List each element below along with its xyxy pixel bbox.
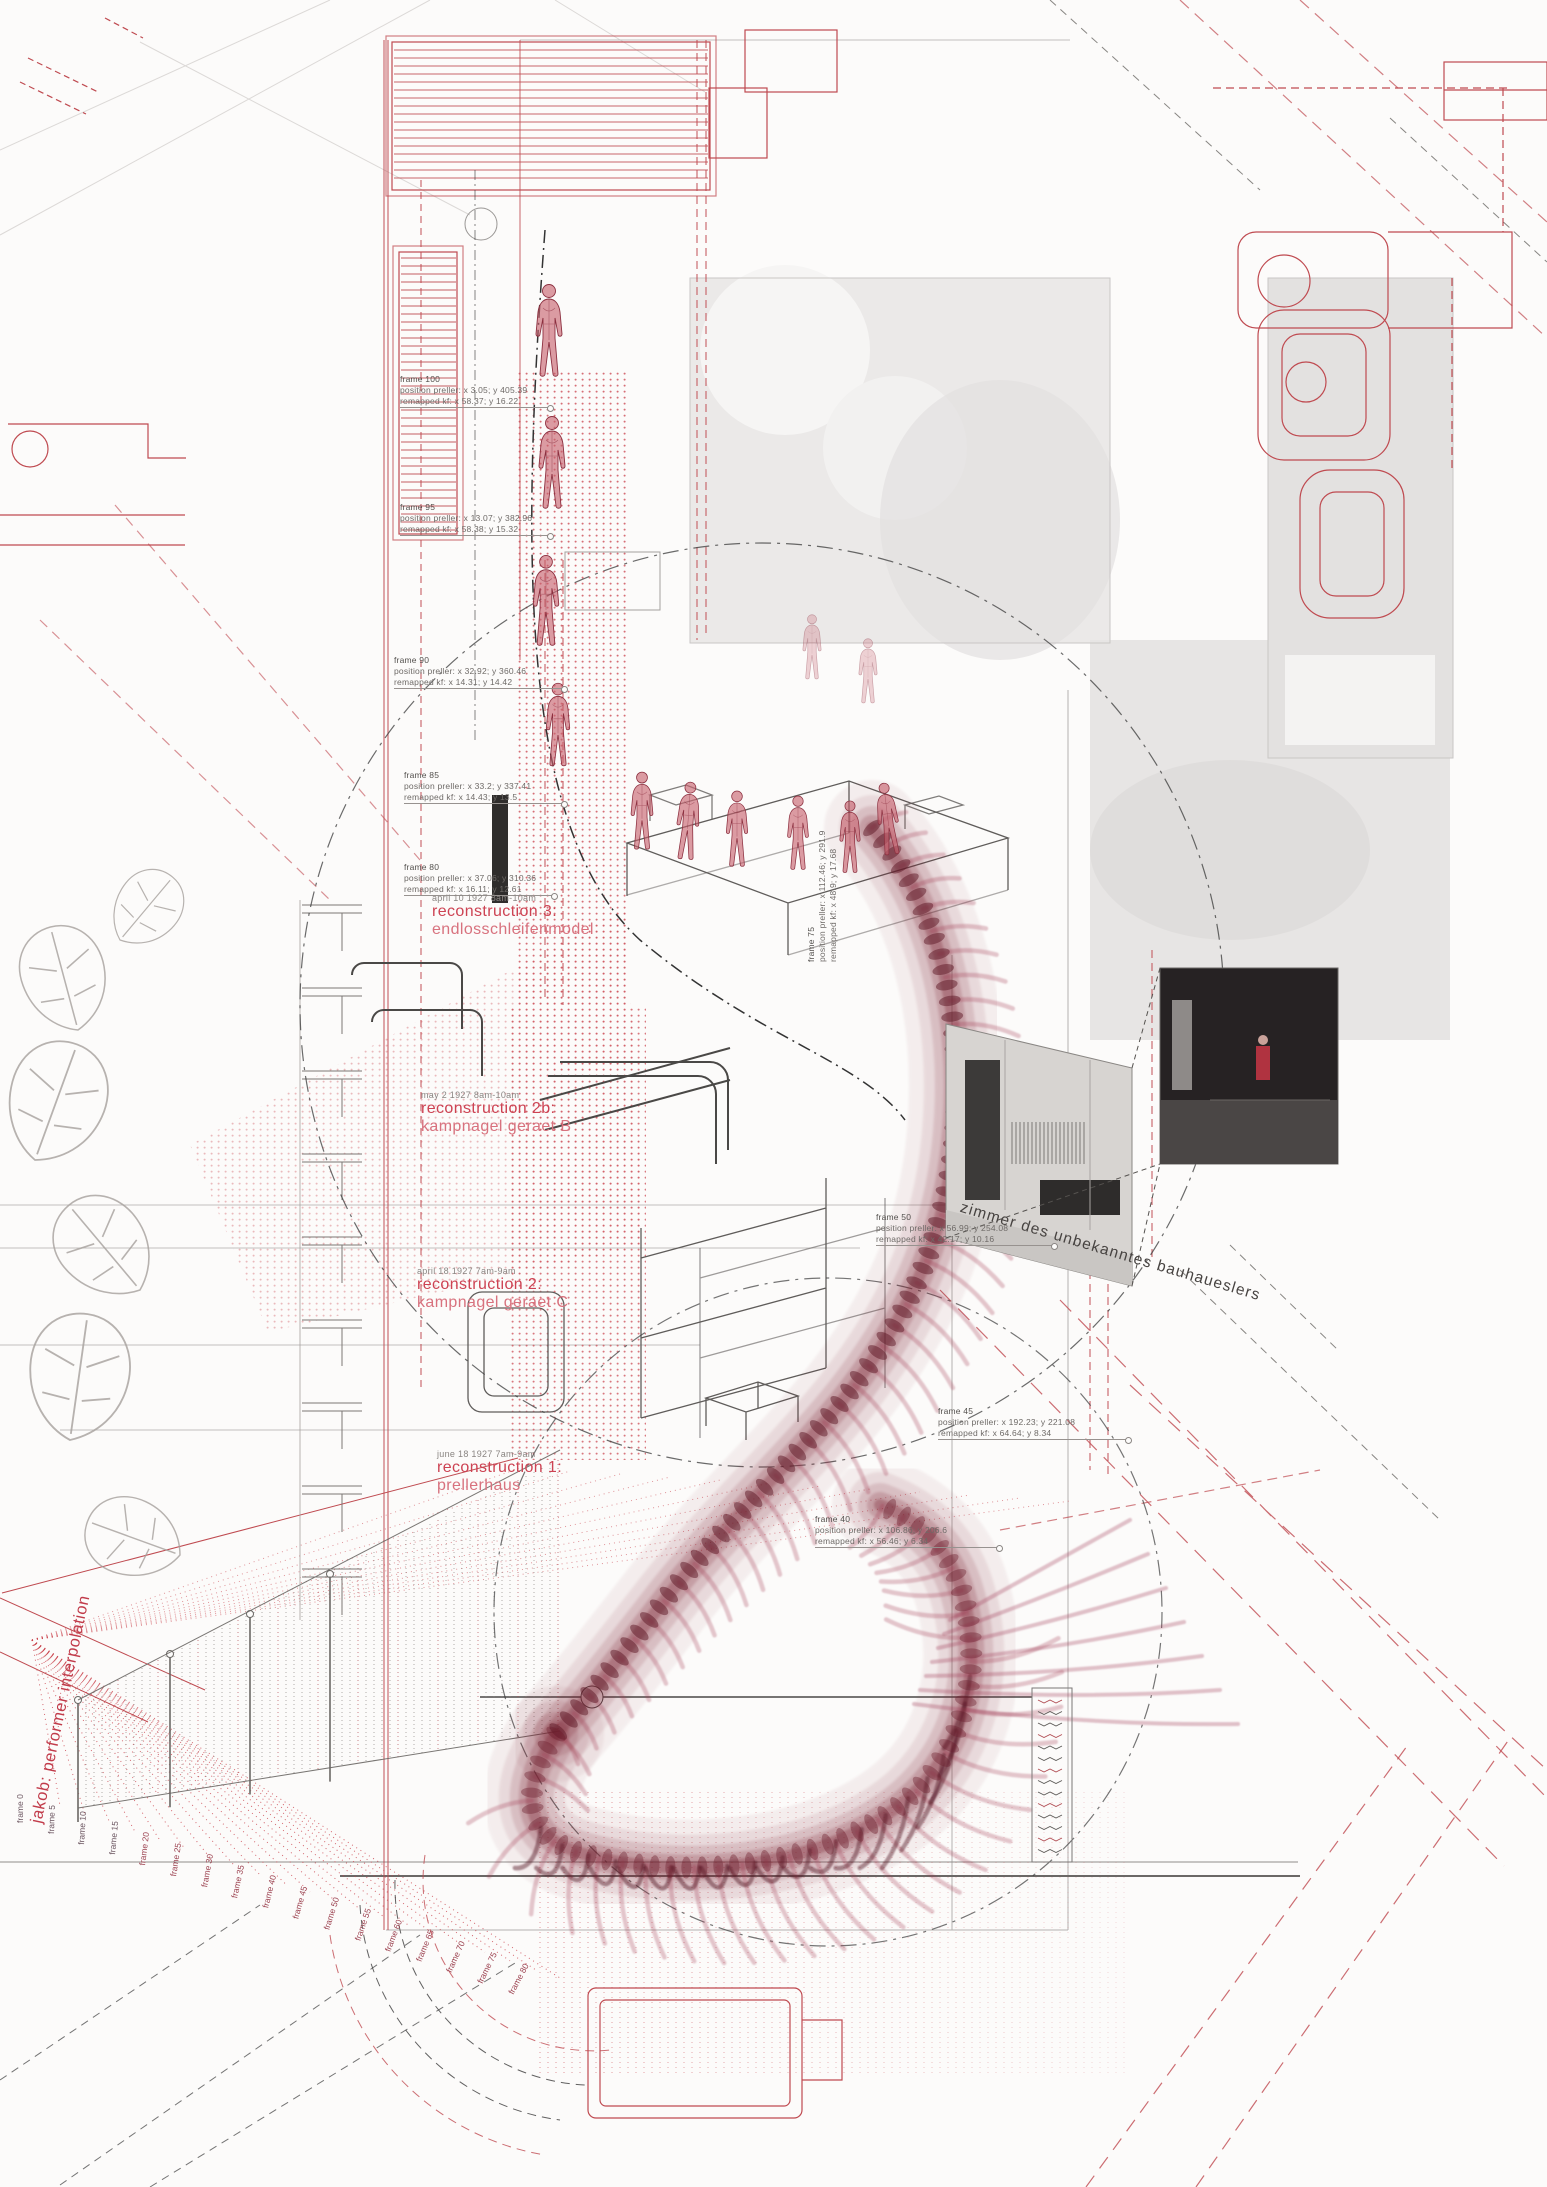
red-dot-bands bbox=[190, 372, 646, 1460]
drawing-canvas: jakob: performer interpolation zimmer de… bbox=[0, 0, 1547, 2187]
plant-leaves bbox=[0, 856, 197, 1591]
background-construction-lines bbox=[0, 0, 705, 235]
drawing-svg bbox=[0, 0, 1547, 2187]
ghost-photo-wash bbox=[690, 265, 1453, 1040]
red-figure-in-photo bbox=[1256, 1046, 1270, 1080]
photo-stage-dark bbox=[1160, 968, 1338, 1164]
